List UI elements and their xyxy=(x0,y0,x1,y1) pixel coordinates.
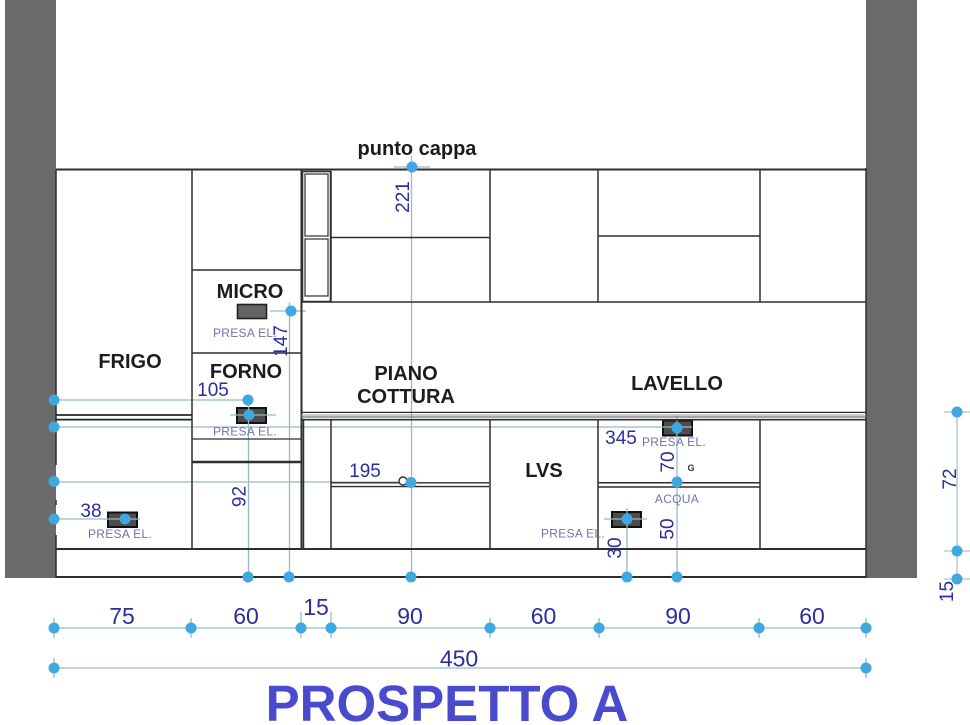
svg-text:ACQUA: ACQUA xyxy=(655,492,699,506)
svg-text:75: 75 xyxy=(109,603,135,629)
svg-text:38: 38 xyxy=(80,501,101,522)
svg-text:PRESA EL.: PRESA EL. xyxy=(213,425,277,439)
svg-text:LAVELLO: LAVELLO xyxy=(631,373,723,395)
svg-text:G: G xyxy=(687,463,694,473)
svg-text:60: 60 xyxy=(233,603,259,629)
svg-text:221: 221 xyxy=(393,181,414,213)
svg-text:LVS: LVS xyxy=(525,460,562,482)
svg-text:70: 70 xyxy=(658,451,679,472)
svg-text:30: 30 xyxy=(605,537,626,558)
svg-text:60: 60 xyxy=(799,603,825,629)
svg-text:MICRO: MICRO xyxy=(217,281,284,303)
svg-text:195: 195 xyxy=(349,461,381,482)
svg-text:15: 15 xyxy=(937,581,958,602)
svg-text:COTTURA: COTTURA xyxy=(357,386,455,408)
svg-text:FRIGO: FRIGO xyxy=(98,351,161,373)
svg-text:50: 50 xyxy=(658,518,679,539)
svg-text:PRESA EL.: PRESA EL. xyxy=(642,435,706,449)
svg-text:punto cappa: punto cappa xyxy=(358,138,478,160)
svg-text:90: 90 xyxy=(397,603,423,629)
svg-text:345: 345 xyxy=(605,428,637,449)
svg-text:PROSPETTO A: PROSPETTO A xyxy=(266,675,629,725)
svg-text:PRESA EL.: PRESA EL. xyxy=(88,527,152,541)
svg-text:PRESA EL.: PRESA EL. xyxy=(213,326,277,340)
svg-text:PIANO: PIANO xyxy=(374,363,437,385)
svg-text:15: 15 xyxy=(303,594,329,620)
svg-text:PRESA EL.: PRESA EL. xyxy=(541,527,605,541)
svg-text:60: 60 xyxy=(531,603,557,629)
svg-text:72: 72 xyxy=(940,468,961,489)
svg-text:90: 90 xyxy=(665,603,691,629)
svg-text:450: 450 xyxy=(440,646,478,672)
svg-text:105: 105 xyxy=(197,380,229,401)
svg-text:92: 92 xyxy=(230,486,251,507)
